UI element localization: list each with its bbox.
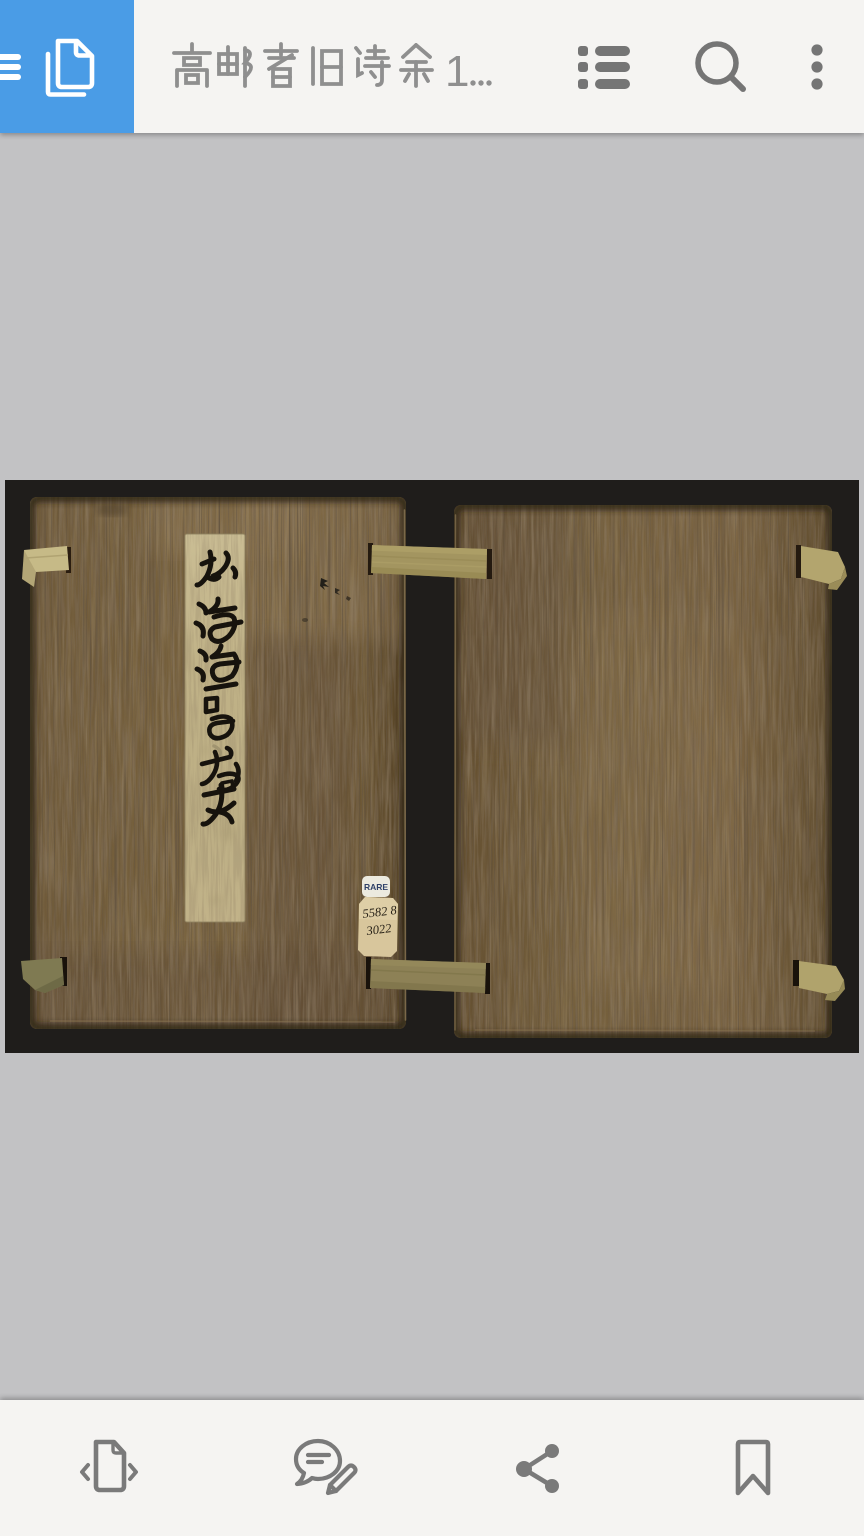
svg-text:RARE: RARE bbox=[364, 882, 388, 892]
svg-text:1: 1 bbox=[445, 47, 469, 94]
